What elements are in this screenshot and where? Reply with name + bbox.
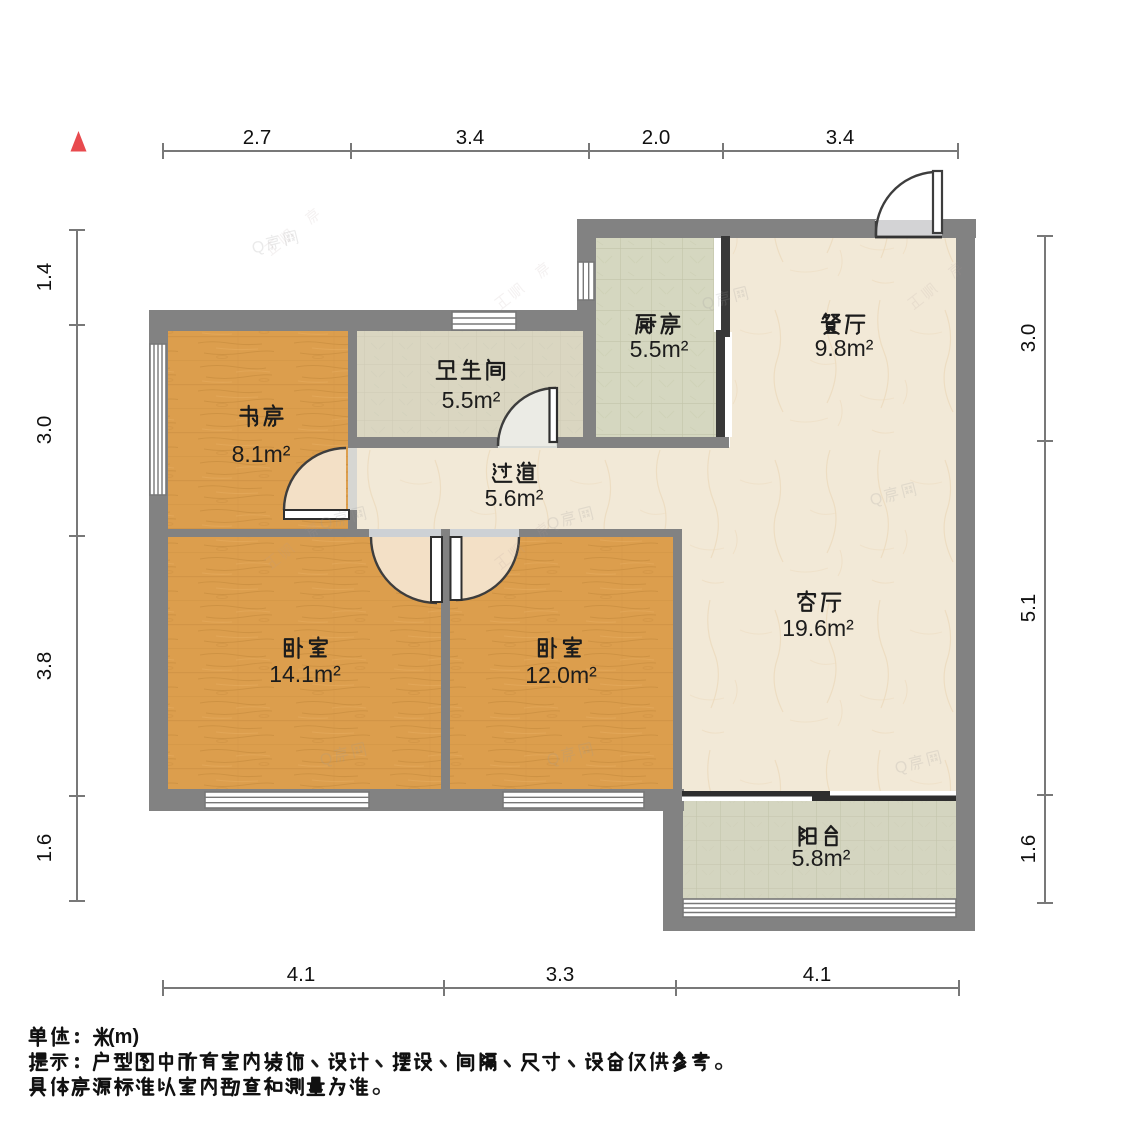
svg-text:5.8m²: 5.8m² xyxy=(792,845,851,871)
svg-text:1.6: 1.6 xyxy=(33,834,56,863)
svg-text:3.4: 3.4 xyxy=(826,126,855,149)
svg-text:3.4: 3.4 xyxy=(456,126,485,149)
svg-text:5.1: 5.1 xyxy=(1017,594,1040,623)
svg-text:2.0: 2.0 xyxy=(642,126,671,149)
svg-text:3.0: 3.0 xyxy=(33,416,56,445)
svg-text:3.8: 3.8 xyxy=(33,652,56,681)
svg-text:1.4: 1.4 xyxy=(33,263,56,292)
svg-text:3.0: 3.0 xyxy=(1017,324,1040,353)
svg-text:9.8m²: 9.8m² xyxy=(815,335,874,361)
svg-text:8.1m²: 8.1m² xyxy=(232,441,291,467)
svg-text:14.1m²: 14.1m² xyxy=(269,661,341,687)
svg-text:12.0m²: 12.0m² xyxy=(525,662,597,688)
svg-text:1.6: 1.6 xyxy=(1017,835,1040,864)
svg-text:2.7: 2.7 xyxy=(243,126,272,149)
svg-text:4.1: 4.1 xyxy=(803,963,832,986)
svg-text:5.5m²: 5.5m² xyxy=(630,336,689,362)
svg-text:(m): (m) xyxy=(108,1026,139,1048)
svg-text:3.3: 3.3 xyxy=(546,963,575,986)
svg-text:5.5m²: 5.5m² xyxy=(442,387,501,413)
svg-text:4.1: 4.1 xyxy=(287,963,316,986)
svg-text:5.6m²: 5.6m² xyxy=(485,485,544,511)
svg-text:19.6m²: 19.6m² xyxy=(782,615,854,641)
